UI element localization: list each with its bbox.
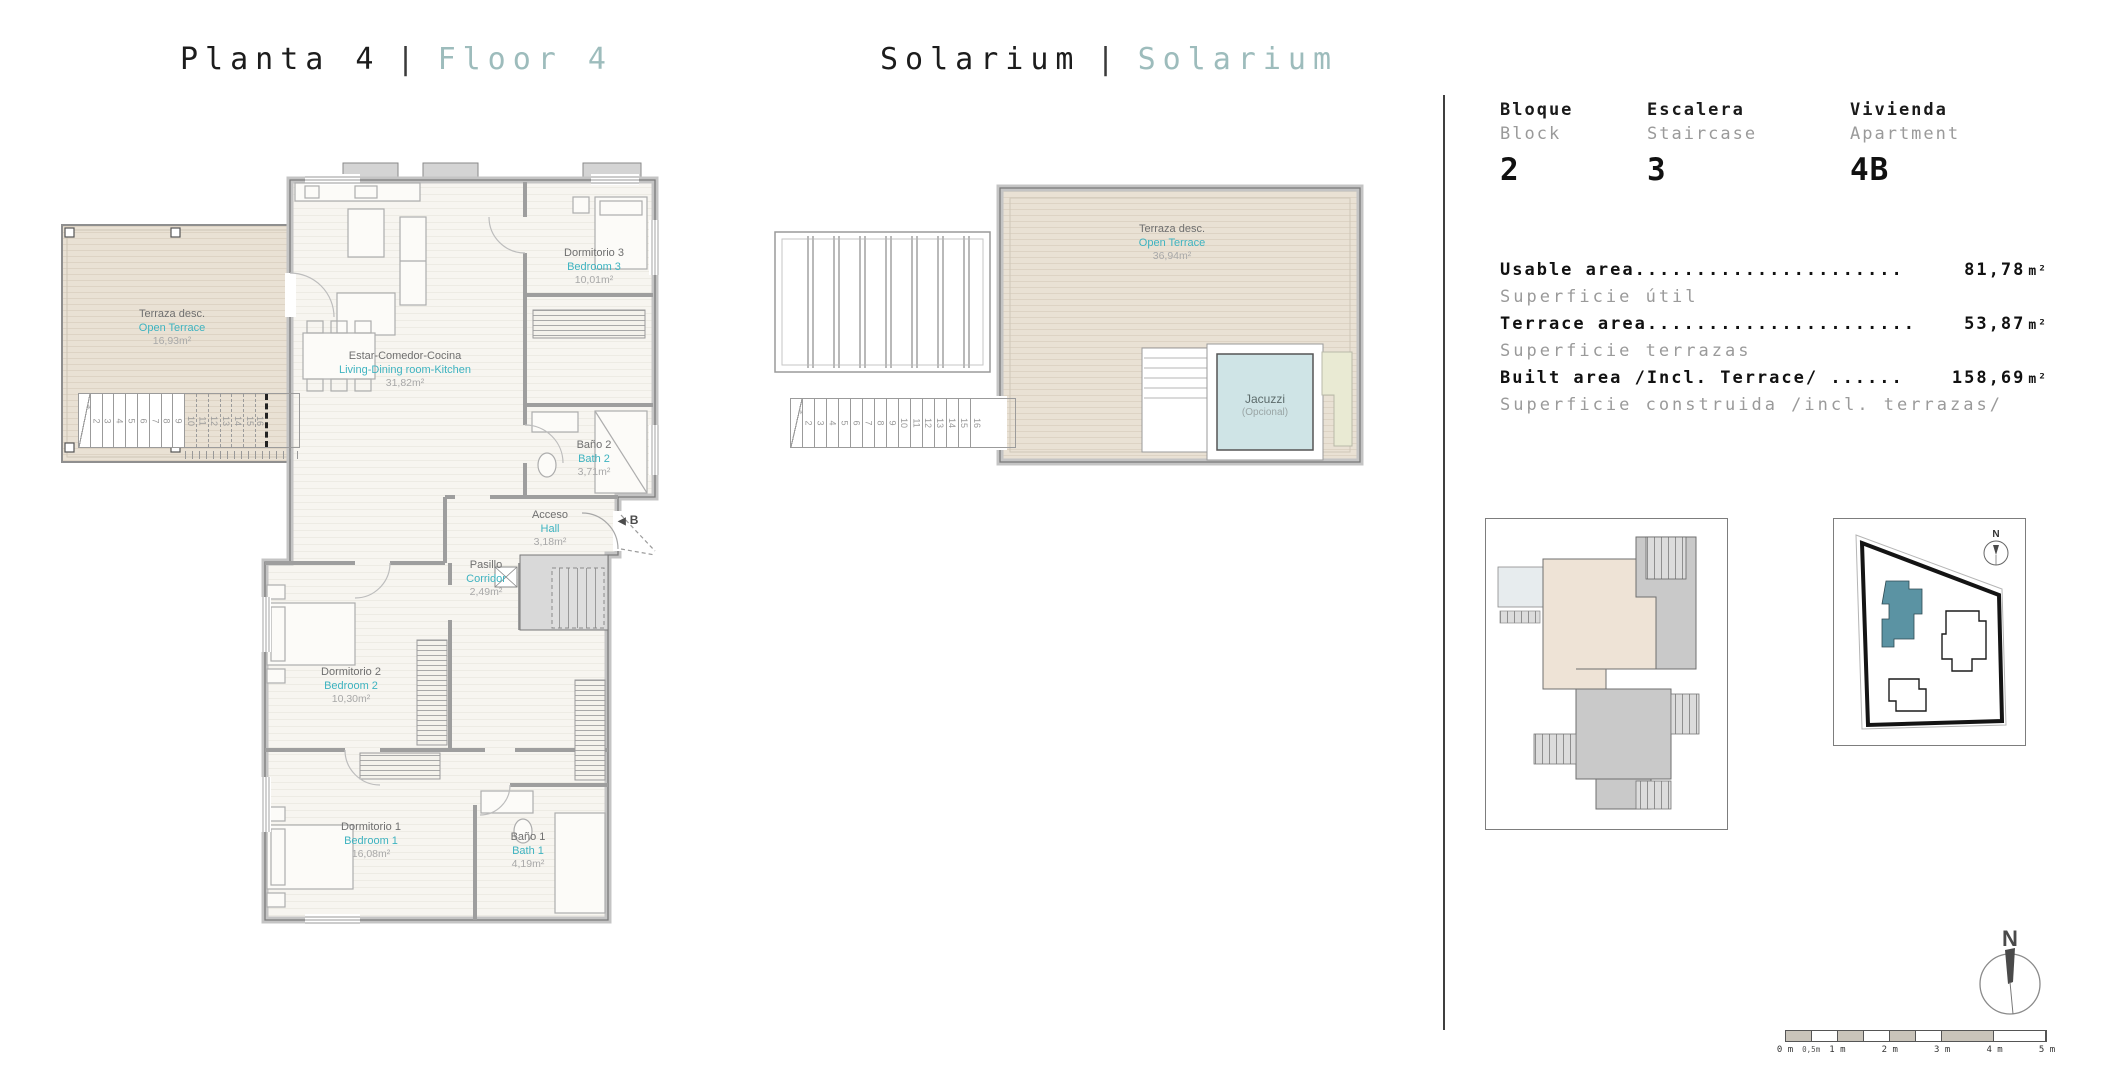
room-name-es: Acceso xyxy=(532,508,568,522)
stair-step: 14 xyxy=(947,399,959,447)
scale-segment xyxy=(1864,1031,1890,1041)
stair-step: 4 xyxy=(114,394,126,447)
stair-step: 1 xyxy=(791,399,803,447)
stair-step: 3 xyxy=(815,399,827,447)
block-value: 2 xyxy=(1500,152,1573,188)
room-area: 4,19m² xyxy=(511,858,546,871)
built-area-label-es: Superficie construida /incl. terrazas/ xyxy=(1500,395,2048,422)
solarium-staircase: 12345678910111213141516 xyxy=(790,398,1016,448)
site-plan-box: N xyxy=(1833,518,2026,746)
room-area: 16,93m² xyxy=(139,335,205,348)
room-area: 31,82m² xyxy=(339,377,471,390)
room-name-en: Bedroom 2 xyxy=(321,679,381,693)
stair-step: 16 xyxy=(256,394,268,447)
stair-step: 2 xyxy=(803,399,815,447)
room-name-en: Bath 2 xyxy=(577,452,612,466)
jacuzzi-note: (Opcional) xyxy=(1242,406,1288,420)
stair-step: 6 xyxy=(138,394,150,447)
site-compass: N xyxy=(1984,529,2008,565)
unit: m² xyxy=(2028,372,2048,387)
terrace-area-value: 53,87m² xyxy=(1964,314,2048,334)
room-name-es: Dormitorio 3 xyxy=(564,246,624,260)
entrance-marker: ◀B xyxy=(618,513,640,527)
staircase-label-es: Escalera xyxy=(1647,100,1757,120)
room-label-bath-1: Baño 1 Bath 1 4,19m² xyxy=(511,830,546,871)
usable-area-value: 81,78m² xyxy=(1964,260,2048,280)
title-separator: | xyxy=(1097,42,1122,77)
title-solarium-en: Solarium xyxy=(1138,42,1339,77)
entrance-arrow-icon: ◀ xyxy=(618,516,628,527)
room-name-es: Terraza desc. xyxy=(139,307,205,321)
stair-step: 10 xyxy=(185,394,197,447)
title-floor-en: Floor 4 xyxy=(438,42,613,77)
scale-label: 1 m xyxy=(1829,1045,1845,1055)
pergola xyxy=(775,232,990,372)
scale-label: 4 m xyxy=(1986,1045,2002,1055)
site-compass-label: N xyxy=(1992,529,1999,540)
stair-step: 5 xyxy=(839,399,851,447)
room-name-en: Open Terrace xyxy=(1139,236,1205,250)
room-area: 36,94m² xyxy=(1139,250,1205,263)
title-floor-es: Planta 4 xyxy=(180,42,381,77)
room-area: 10,30m² xyxy=(321,693,381,706)
room-name-es: Pasillo xyxy=(466,558,506,572)
stair-step: 10 xyxy=(899,399,911,447)
room-name-es: Terraza desc. xyxy=(1139,222,1205,236)
entrance-letter: B xyxy=(630,513,641,527)
compass-label: N xyxy=(2002,926,2018,951)
room-name-en: Open Terrace xyxy=(139,321,205,335)
apartment-label-en: Apartment xyxy=(1850,124,1960,144)
terrace-area-label: Terrace area...................... xyxy=(1500,314,1916,334)
terrace-area-label-es: Superficie terrazas xyxy=(1500,341,2048,368)
stair-step: 6 xyxy=(851,399,863,447)
stair-landing xyxy=(1142,348,1210,452)
room-label-solarium-terrace: Terraza desc. Open Terrace 36,94m² xyxy=(1139,222,1205,263)
staircase-label-en: Staircase xyxy=(1647,124,1757,144)
scale-label: 2 m xyxy=(1882,1045,1898,1055)
info-staircase: Escalera Staircase 3 xyxy=(1647,100,1757,188)
room-name-es: Dormitorio 1 xyxy=(341,820,401,834)
title-solarium-es: Solarium xyxy=(880,42,1081,77)
room-label-bedroom-1: Dormitorio 1 Bedroom 1 16,08m² xyxy=(341,820,401,861)
room-name-en: Corridor xyxy=(466,572,506,586)
stair-step: 16 xyxy=(971,399,983,447)
jacuzzi-label: Jacuzzi (Opcional) xyxy=(1242,392,1288,420)
stair-step: 11 xyxy=(197,394,209,447)
floor-plan-drawing xyxy=(55,125,680,925)
stair-step: 9 xyxy=(887,399,899,447)
terrace-area-row: Terrace area...................... 53,87… xyxy=(1500,314,2048,341)
room-name-es: Baño 1 xyxy=(511,830,546,844)
room-label-open-terrace: Terraza desc. Open Terrace 16,93m² xyxy=(139,307,205,348)
room-name-en: Living-Dining room-Kitchen xyxy=(339,363,471,377)
built-area-value: 158,69m² xyxy=(1952,368,2048,388)
key-plan-drawing xyxy=(1486,519,1727,829)
room-name-en: Bedroom 3 xyxy=(564,260,624,274)
room-area: 3,71m² xyxy=(577,466,612,479)
usable-area-row: Usable area...................... 81,78m… xyxy=(1500,260,2048,287)
stair-step: 4 xyxy=(827,399,839,447)
scale-segment xyxy=(1838,1031,1864,1041)
stair-step: 9 xyxy=(173,394,185,447)
scale-segment xyxy=(1994,1031,2046,1041)
site-plan-drawing: N xyxy=(1834,519,2025,745)
room-label-living: Estar-Comedor-Cocina Living-Dining room-… xyxy=(339,349,471,390)
room-label-bedroom-3: Dormitorio 3 Bedroom 3 10,01m² xyxy=(564,246,624,287)
unit: m² xyxy=(2028,318,2048,333)
scale-label: 5 m xyxy=(2039,1045,2055,1055)
stair-step: 13 xyxy=(935,399,947,447)
block-label-en: Block xyxy=(1500,124,1573,144)
room-area: 10,01m² xyxy=(564,274,624,287)
room-name-es: Dormitorio 2 xyxy=(321,665,381,679)
room-name-en: Bedroom 1 xyxy=(341,834,401,848)
staircase-value: 3 xyxy=(1647,152,1757,188)
unit: m² xyxy=(2028,264,2048,279)
stair-step: 7 xyxy=(150,394,162,447)
scale-segment xyxy=(1812,1031,1838,1041)
stair-step: 8 xyxy=(162,394,174,447)
room-name-en: Hall xyxy=(532,522,568,536)
stair-step: 8 xyxy=(875,399,887,447)
usable-area-label: Usable area...................... xyxy=(1500,260,1904,280)
room-area: 2,49m² xyxy=(466,586,506,599)
stair-step: 13 xyxy=(221,394,233,447)
highlighted-block xyxy=(1882,581,1922,647)
room-label-hall: Acceso Hall 3,18m² xyxy=(532,508,568,549)
stair-step: 11 xyxy=(911,399,923,447)
stair-step: 7 xyxy=(863,399,875,447)
stair-step: 3 xyxy=(103,394,115,447)
room-name-es: Estar-Comedor-Cocina xyxy=(339,349,471,363)
page-title-solarium: Solarium|Solarium xyxy=(880,42,1338,77)
room-label-bedroom-2: Dormitorio 2 Bedroom 2 10,30m² xyxy=(321,665,381,706)
scale-bar-track xyxy=(1785,1030,2047,1042)
info-apartment: Vivienda Apartment 4B xyxy=(1850,100,1960,188)
stair-step: 12 xyxy=(209,394,221,447)
scale-bar: 0 m0,5m1 m2 m3 m4 m5 m xyxy=(1785,1030,2047,1060)
title-separator: | xyxy=(397,42,422,77)
room-name-en: Bath 1 xyxy=(511,844,546,858)
scale-label: 3 m xyxy=(1934,1045,1950,1055)
room-label-bath-2: Baño 2 Bath 2 3,71m² xyxy=(577,438,612,479)
room-area: 3,18m² xyxy=(532,536,568,549)
room-name-es: Baño 2 xyxy=(577,438,612,452)
scale-bar-labels: 0 m0,5m1 m2 m3 m4 m5 m xyxy=(1785,1042,2047,1056)
jacuzzi-name: Jacuzzi xyxy=(1242,392,1288,406)
scale-label: 0 m xyxy=(1777,1045,1793,1055)
terrace-staircase: 12345678910111213141516 xyxy=(78,393,300,448)
usable-area-label-es: Superficie útil xyxy=(1500,287,2048,314)
built-area-label: Built area /Incl. Terrace/ ...... xyxy=(1500,368,1904,388)
scale-segment xyxy=(1942,1031,1994,1041)
block-label-es: Bloque xyxy=(1500,100,1573,120)
stair-step: 12 xyxy=(923,399,935,447)
apartment-value: 4B xyxy=(1850,152,1960,188)
compass: N xyxy=(1972,922,2052,1022)
room-label-corridor: Pasillo Corridor 2,49m² xyxy=(466,558,506,599)
stair-step: 15 xyxy=(959,399,971,447)
page-title-floor: Planta 4|Floor 4 xyxy=(180,42,613,77)
scale-segment xyxy=(1916,1031,1942,1041)
stair-step: 2 xyxy=(91,394,103,447)
vertical-divider xyxy=(1443,95,1445,1030)
stair-step: 5 xyxy=(126,394,138,447)
info-block: Bloque Block 2 xyxy=(1500,100,1573,188)
floorplan-sheet: Planta 4|Floor 4 Solarium|Solarium xyxy=(0,0,2112,1080)
scale-segment xyxy=(1786,1031,1812,1041)
stair-step: 1 xyxy=(79,394,91,447)
scale-segment xyxy=(1890,1031,1916,1041)
key-plan-box xyxy=(1485,518,1728,830)
stair-tick-strip xyxy=(185,451,301,459)
stair-step: 14 xyxy=(232,394,244,447)
compass-needle xyxy=(2005,948,2015,984)
built-area-row: Built area /Incl. Terrace/ ...... 158,69… xyxy=(1500,368,2048,395)
room-area: 16,08m² xyxy=(341,848,401,861)
apartment-label-es: Vivienda xyxy=(1850,100,1960,120)
area-table: Usable area...................... 81,78m… xyxy=(1500,260,2048,422)
scale-label: 0,5m xyxy=(1802,1045,1820,1054)
